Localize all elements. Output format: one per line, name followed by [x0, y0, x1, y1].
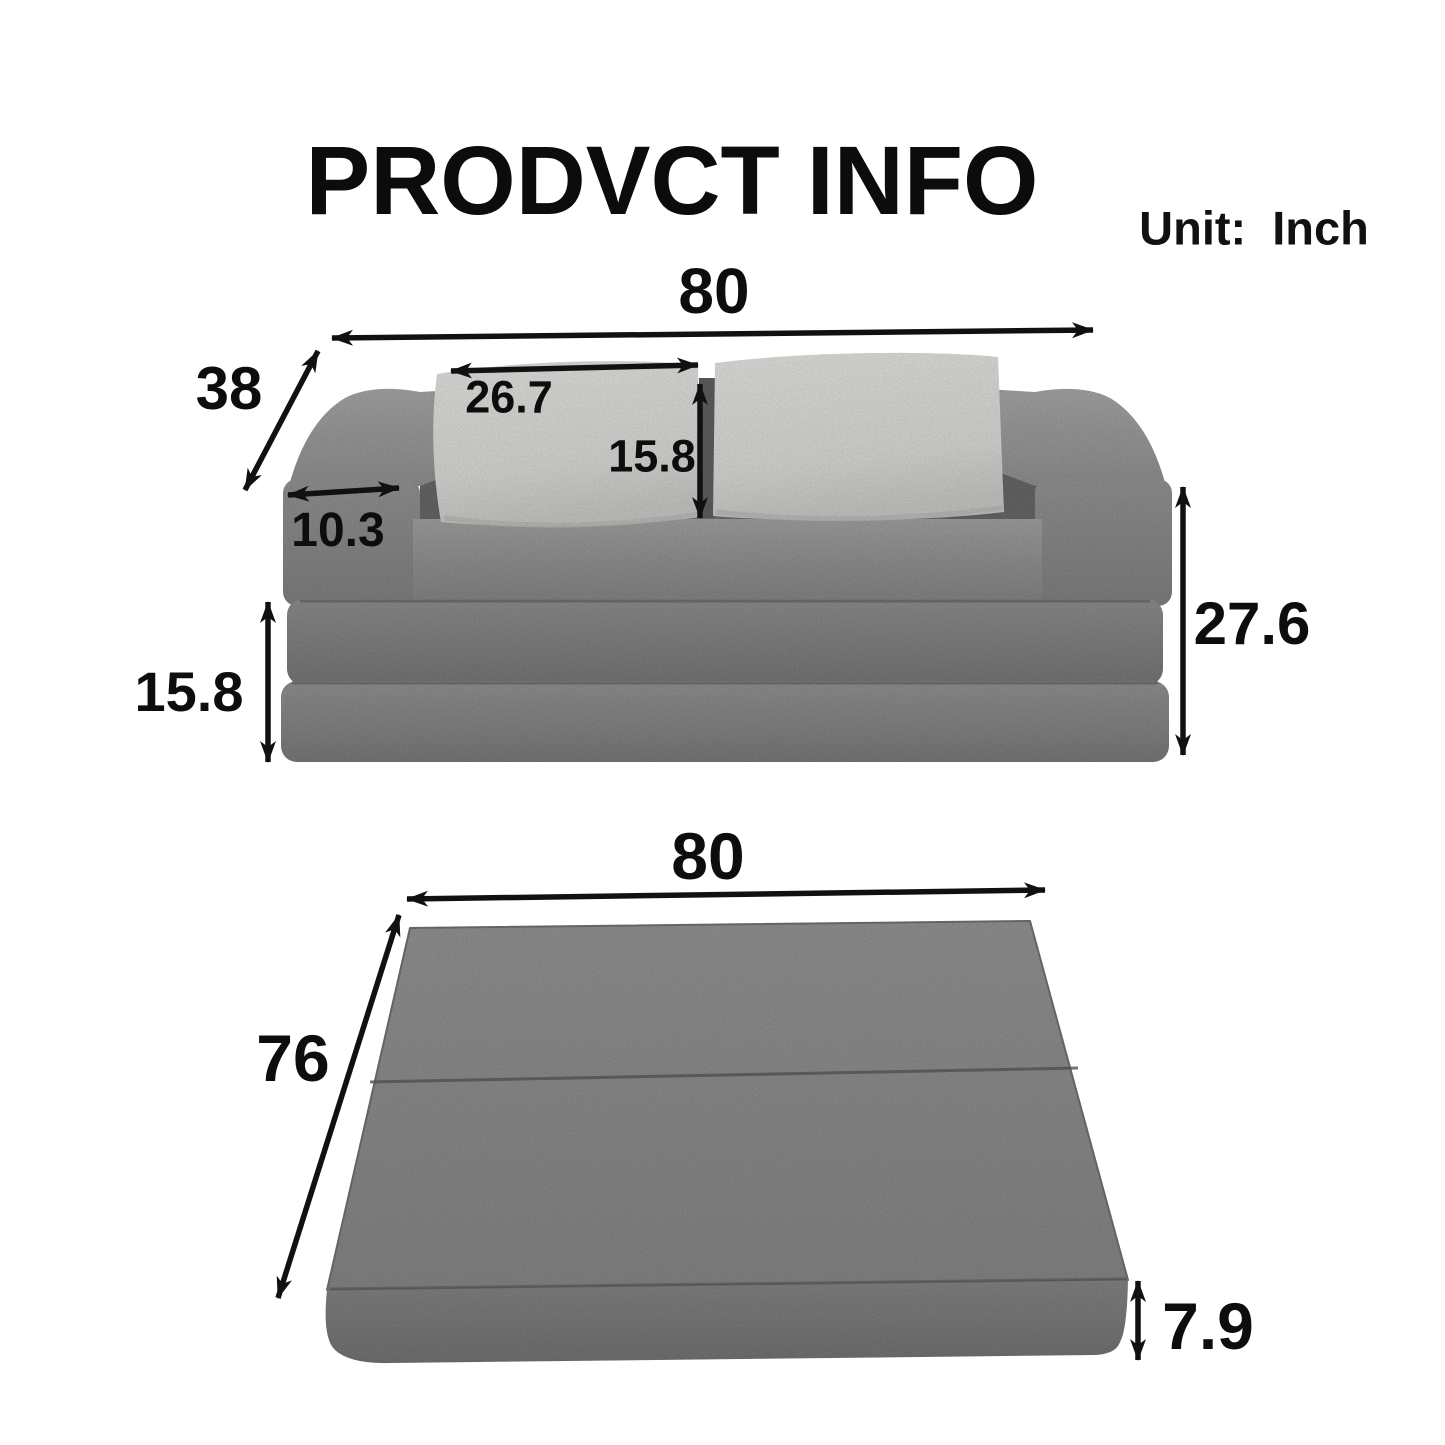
- bed-top-surface: [327, 921, 1128, 1290]
- layer-height-label: 15.8: [135, 664, 244, 720]
- pillow-height-label: 15.8: [608, 434, 696, 479]
- bed-depth-label: 76: [256, 1025, 329, 1091]
- mattress-layer-3: [281, 681, 1169, 762]
- bed-illustration: [326, 921, 1128, 1363]
- page-title: PRODVCT INFO: [306, 125, 1039, 237]
- sofa-width-label: 80: [678, 259, 749, 323]
- sofa-illustration: [281, 353, 1172, 762]
- unit-label: Unit: Inch: [1139, 201, 1369, 256]
- pillow-right: [713, 353, 1004, 521]
- right-armrest-front: [1035, 479, 1172, 606]
- sofa-depth-label: 38: [196, 359, 263, 419]
- unit-value: Inch: [1272, 201, 1369, 256]
- seat-cushion: [413, 519, 1042, 607]
- bed-width-label: 80: [671, 823, 744, 889]
- armrest-width-label: 10.3: [291, 507, 384, 555]
- unit-prefix: Unit:: [1139, 201, 1246, 256]
- bed-thickness-label: 7.9: [1162, 1293, 1254, 1359]
- product-info-sheet: PRODVCT INFO Unit: Inch 80 38 26.7 15.8 …: [0, 0, 1445, 1445]
- mattress-layer-2: [287, 599, 1163, 685]
- sofa-total-height-label: 27.6: [1194, 594, 1311, 654]
- sofa-width-arrow: [332, 330, 1093, 338]
- pillow-width-label: 26.7: [465, 375, 553, 420]
- bed-front-face: [326, 1280, 1128, 1363]
